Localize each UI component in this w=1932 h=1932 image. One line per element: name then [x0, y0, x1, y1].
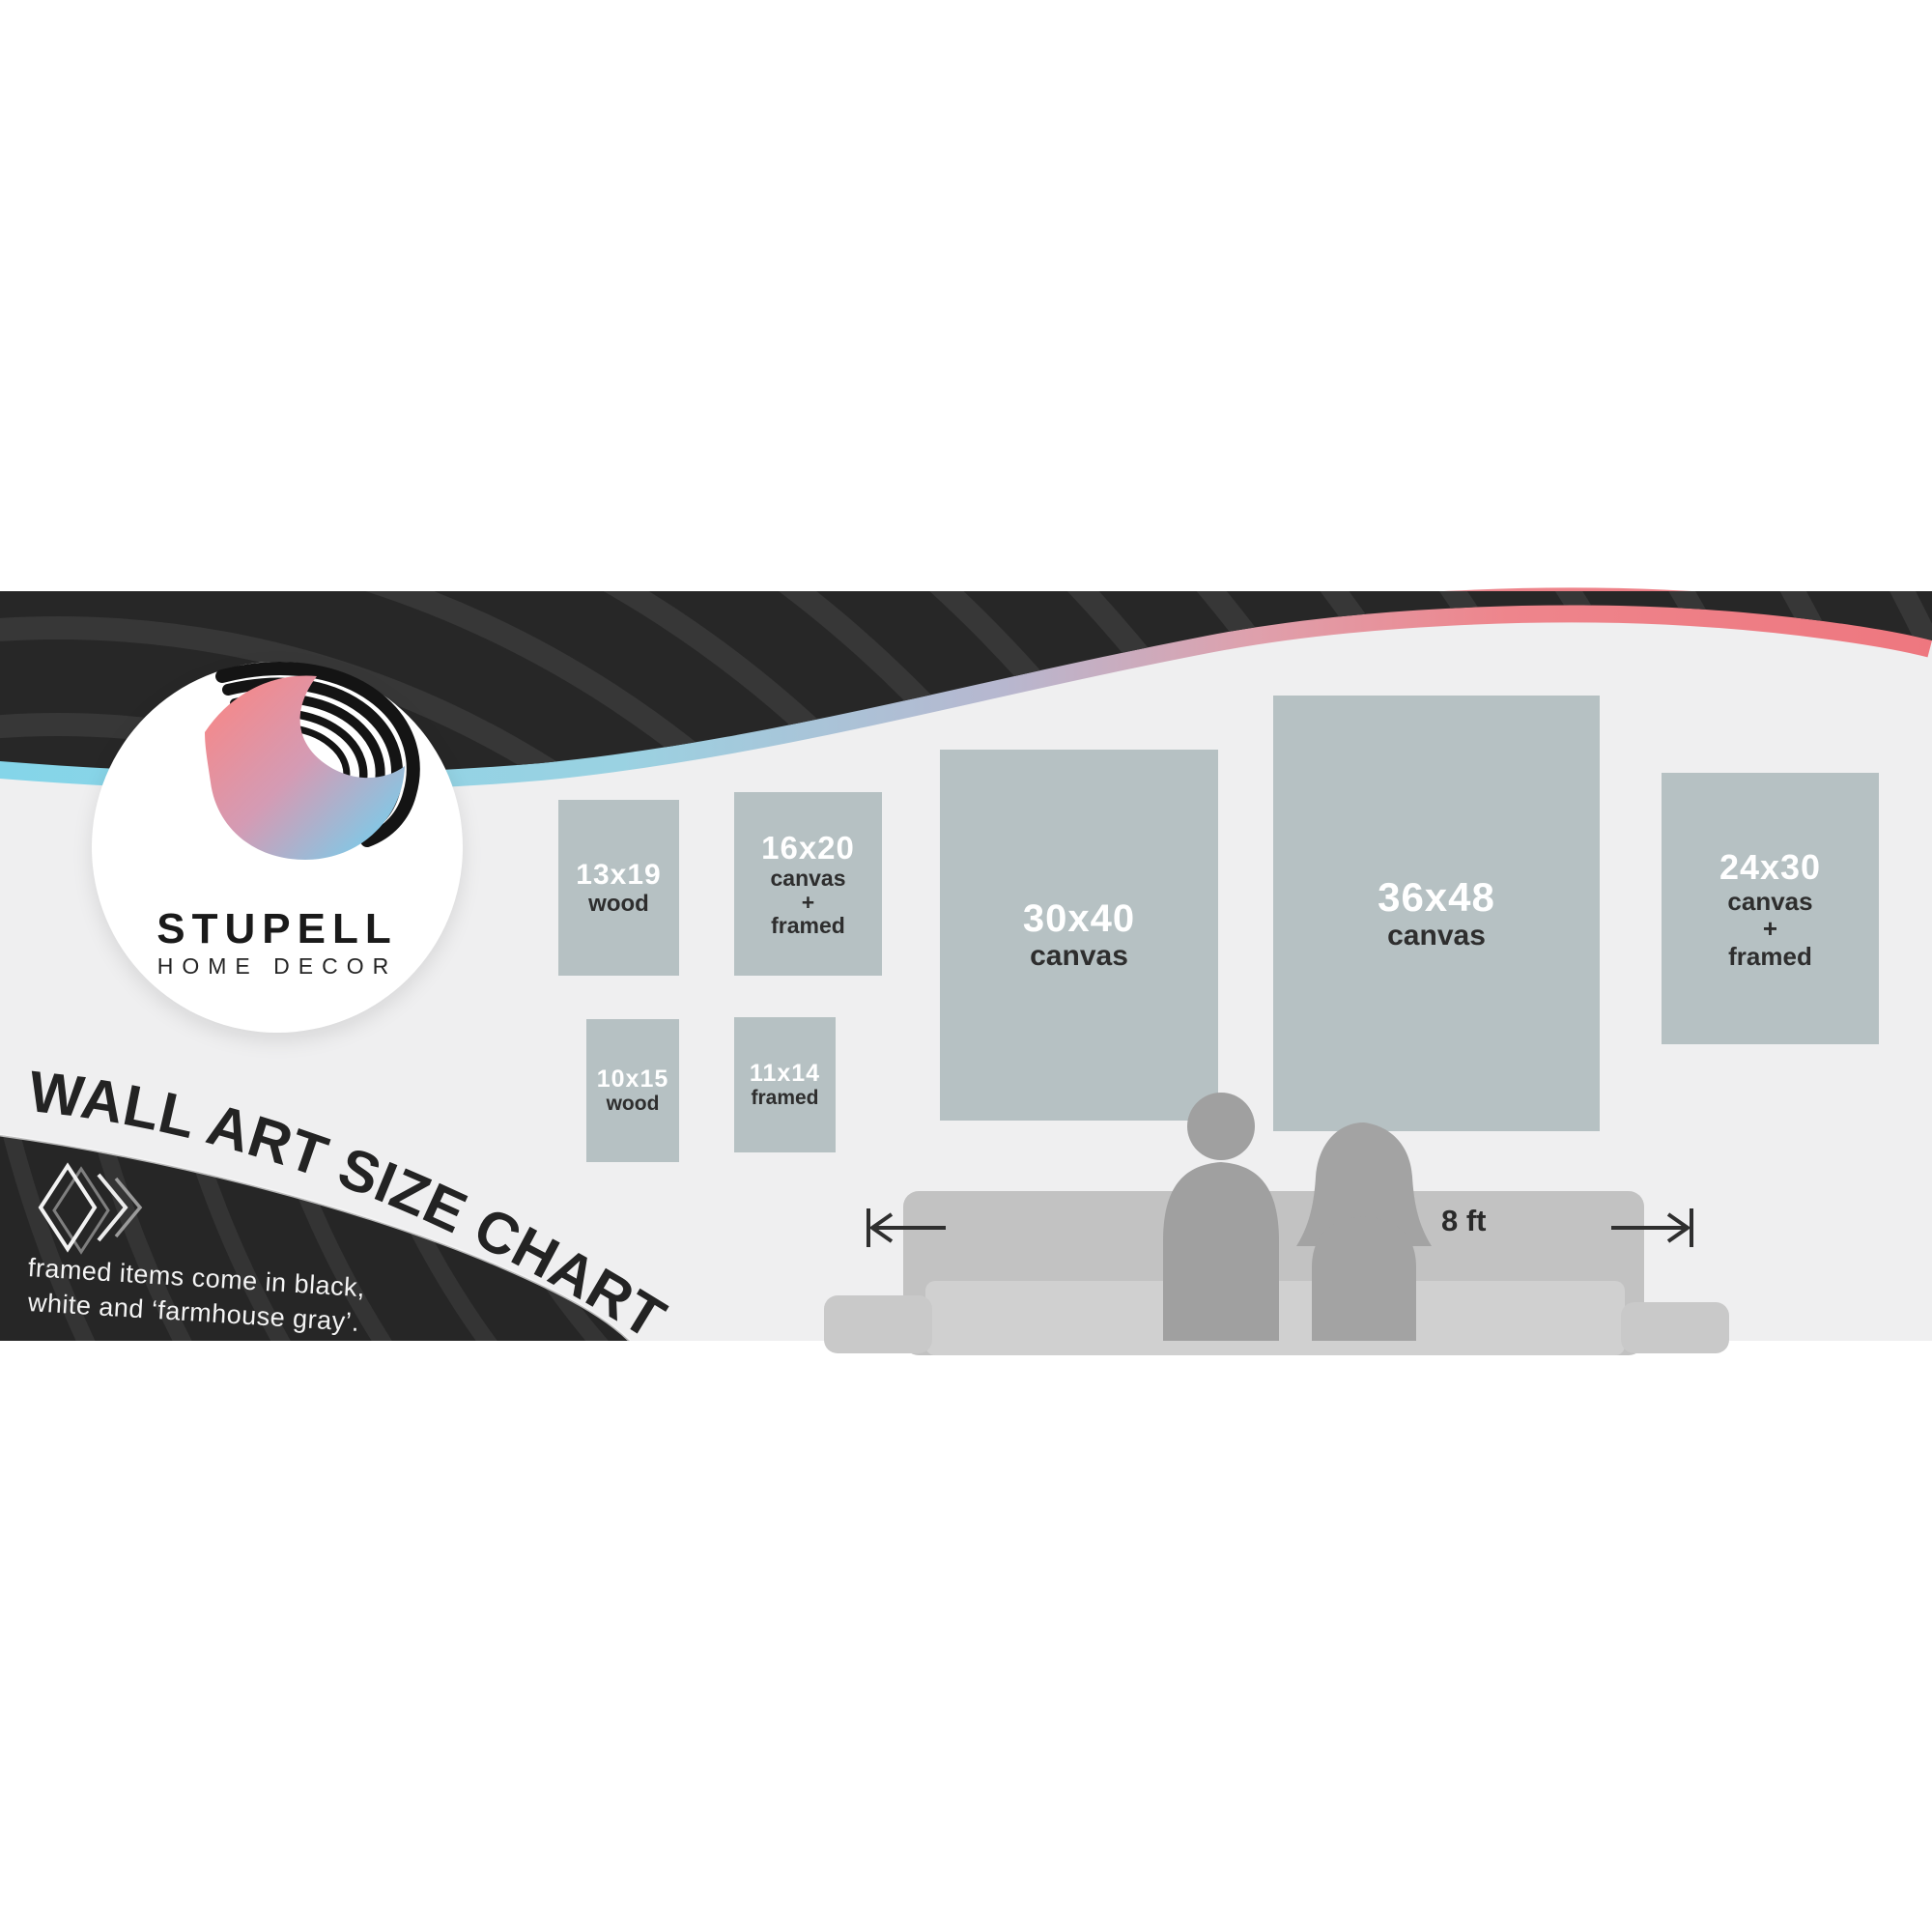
size-label: 36x48 [1378, 874, 1495, 921]
size-rect-36x48: 36x48 canvas [1273, 696, 1600, 1131]
stupell-logo-badge: STUPELL HOME DECOR [92, 662, 463, 1033]
size-rect-30x40: 30x40 canvas [940, 750, 1218, 1121]
size-type-label: canvas + framed [768, 867, 849, 938]
size-type-label: wood [588, 892, 649, 917]
size-type-label: wood [607, 1094, 660, 1116]
wall-art-size-chart-banner: 13x19 wood 16x20 canvas + framed 30x40 c… [0, 0, 1932, 1932]
size-label: 13x19 [576, 859, 661, 892]
size-type-label: canvas [1030, 941, 1128, 972]
size-label: 30x40 [1023, 897, 1135, 941]
size-label: 24x30 [1719, 847, 1821, 888]
size-type-label: canvas [1387, 921, 1486, 952]
size-rect-11x14: 11x14 framed [734, 1017, 836, 1152]
distance-label: 8 ft [1441, 1204, 1487, 1238]
size-label: 11x14 [750, 1060, 820, 1088]
size-rect-24x30: 24x30 canvas + framed [1662, 773, 1879, 1044]
brand-name: STUPELL [132, 905, 422, 953]
size-rect-10x15: 10x15 wood [586, 1019, 679, 1162]
size-rect-13x19: 13x19 wood [558, 800, 679, 976]
size-rect-16x20: 16x20 canvas + framed [734, 792, 882, 976]
size-label: 10x15 [597, 1065, 669, 1094]
size-label: 16x20 [761, 830, 855, 867]
brand-tagline: HOME DECOR [132, 953, 422, 980]
size-type-label: framed [751, 1088, 818, 1110]
size-type-label: canvas + framed [1726, 888, 1815, 969]
